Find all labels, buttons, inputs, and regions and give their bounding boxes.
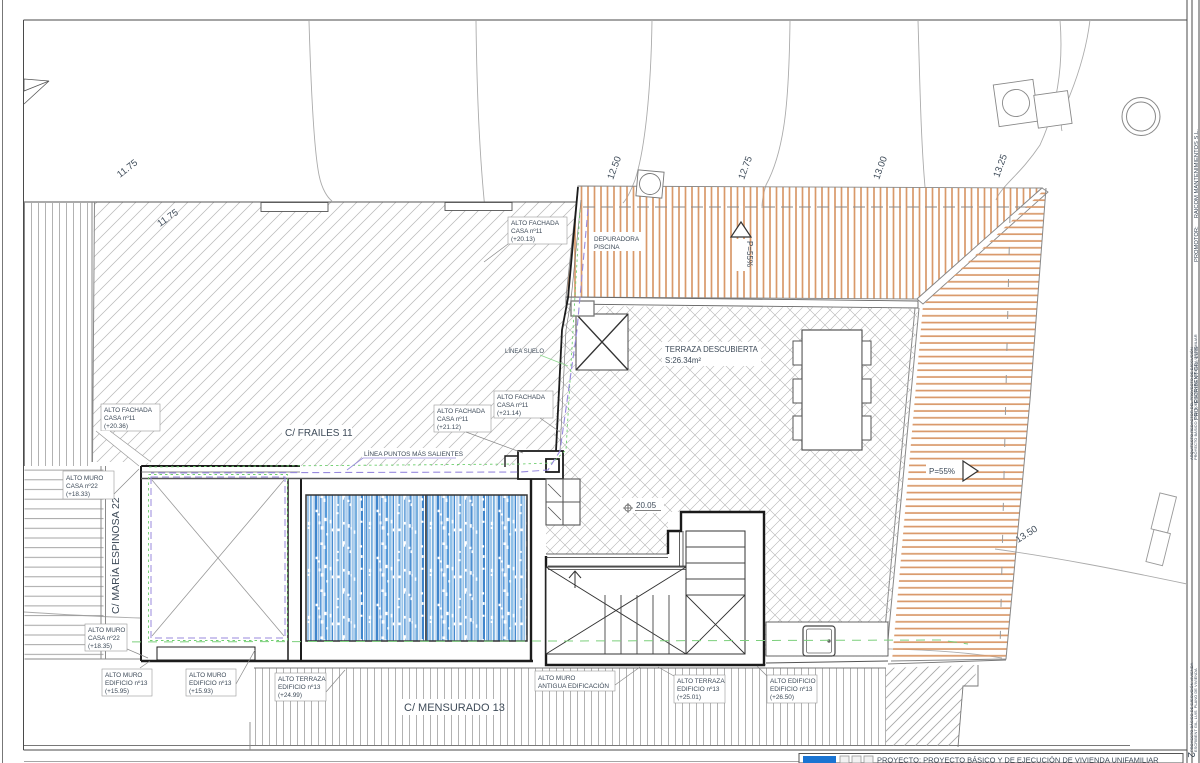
svg-text:DEPURADORA: DEPURADORA	[594, 236, 640, 243]
svg-text:ALTO TERRAZA: ALTO TERRAZA	[278, 676, 326, 683]
svg-text:(+18.35): (+18.35)	[88, 643, 112, 650]
svg-text:P=55%: P=55%	[929, 467, 955, 476]
svg-text:ALTO FACHADA: ALTO FACHADA	[511, 220, 560, 227]
svg-text:S:26.34m²: S:26.34m²	[665, 356, 701, 365]
svg-text:ALTO MURO: ALTO MURO	[189, 672, 226, 679]
svg-text:PROYECTO: PROYECTO BÁSICO Y DE: PROYECTO: PROYECTO BÁSICO Y DE EJECUCIÓN…	[877, 756, 1159, 763]
svg-text:ALTO FACHADA: ALTO FACHADA	[104, 407, 153, 414]
svg-text:CASA nº22: CASA nº22	[66, 483, 98, 490]
svg-text:ALTO TERRAZA: ALTO TERRAZA	[677, 678, 725, 685]
svg-text:TERRAZA DESCUBIERTA: TERRAZA DESCUBIERTA	[665, 345, 759, 354]
svg-text:C/ FRAILES 11: C/ FRAILES 11	[285, 428, 353, 439]
svg-text:P=55%: P=55%	[745, 241, 754, 267]
svg-text:PROMOTOR: RAICOM MANTENIMI: PROMOTOR: RAICOM MANTENIMIENTOS S.L.	[1194, 129, 1200, 262]
svg-text:EDIFICIO nº13: EDIFICIO nº13	[105, 680, 148, 687]
svg-text:(+20.13): (+20.13)	[511, 236, 535, 243]
svg-text:ALTO FACHADA: ALTO FACHADA	[497, 394, 546, 401]
svg-text:EDIFICIO nº13: EDIFICIO nº13	[770, 686, 813, 693]
svg-text:20.05: 20.05	[636, 501, 657, 510]
svg-text:(+21.14): (+21.14)	[497, 410, 521, 417]
svg-text:PISCINA: PISCINA	[594, 244, 620, 251]
svg-text:PROYECTO BÁSICO DE EJECUCIÓN V: PROYECTO BÁSICO DE EJECUCIÓN VIVIENDA	[1189, 662, 1194, 752]
svg-text:(+20.36): (+20.36)	[104, 423, 128, 430]
svg-text:EDIFICIO nº13: EDIFICIO nº13	[189, 680, 232, 687]
svg-text:LÍNEA SUELO: LÍNEA SUELO	[505, 348, 544, 355]
svg-text:EDIFICIO nº13: EDIFICIO nº13	[278, 684, 321, 691]
svg-text:LÍNEA PUNTOS MÁS SALIENTES: LÍNEA PUNTOS MÁS SALIENTES	[364, 449, 463, 458]
svg-text:(+18.33): (+18.33)	[66, 491, 90, 498]
svg-text:C/ MENSURADO 13: C/ MENSURADO 13	[404, 702, 505, 714]
svg-text:2: 2	[1185, 752, 1196, 758]
svg-text:ALTO MURO: ALTO MURO	[538, 675, 575, 682]
svg-text:ALTO MURO: ALTO MURO	[66, 475, 103, 482]
svg-text:CASA nº11: CASA nº11	[511, 228, 543, 235]
svg-text:EDIFICIO nº13: EDIFICIO nº13	[677, 686, 720, 693]
svg-text:ARQUITECTO REDACTOR DEL PROYEC: ARQUITECTO REDACTOR DEL PROYECTO DE EJEC…	[1189, 347, 1194, 460]
svg-text:(+25.01): (+25.01)	[677, 694, 701, 701]
svg-text:ALTO EDIFICIO: ALTO EDIFICIO	[770, 678, 816, 685]
svg-text:(+26.50): (+26.50)	[770, 694, 794, 701]
svg-text:ALTO MURO: ALTO MURO	[105, 672, 142, 679]
svg-text:CASA nº11: CASA nº11	[497, 402, 529, 409]
svg-text:(+15.93): (+15.93)	[189, 688, 213, 695]
svg-text:ALTO FACHADA: ALTO FACHADA	[437, 408, 486, 415]
svg-text:ALTO MURO: ALTO MURO	[88, 627, 125, 634]
svg-text:ANTIGUA EDIFICACIÓN: ANTIGUA EDIFICACIÓN	[538, 681, 609, 690]
svg-text:CASA nº11: CASA nº11	[104, 415, 136, 422]
svg-text:CASA nº22: CASA nº22	[88, 635, 120, 642]
svg-text:(+24.99): (+24.99)	[278, 692, 302, 699]
svg-text:CASA nº11: CASA nº11	[437, 416, 469, 423]
svg-text:C/ MARÍA ESPINOSA 22: C/ MARÍA ESPINOSA 22	[109, 497, 122, 614]
svg-text:(+21.12): (+21.12)	[437, 424, 461, 431]
svg-text:(+15.95): (+15.95)	[105, 688, 129, 695]
